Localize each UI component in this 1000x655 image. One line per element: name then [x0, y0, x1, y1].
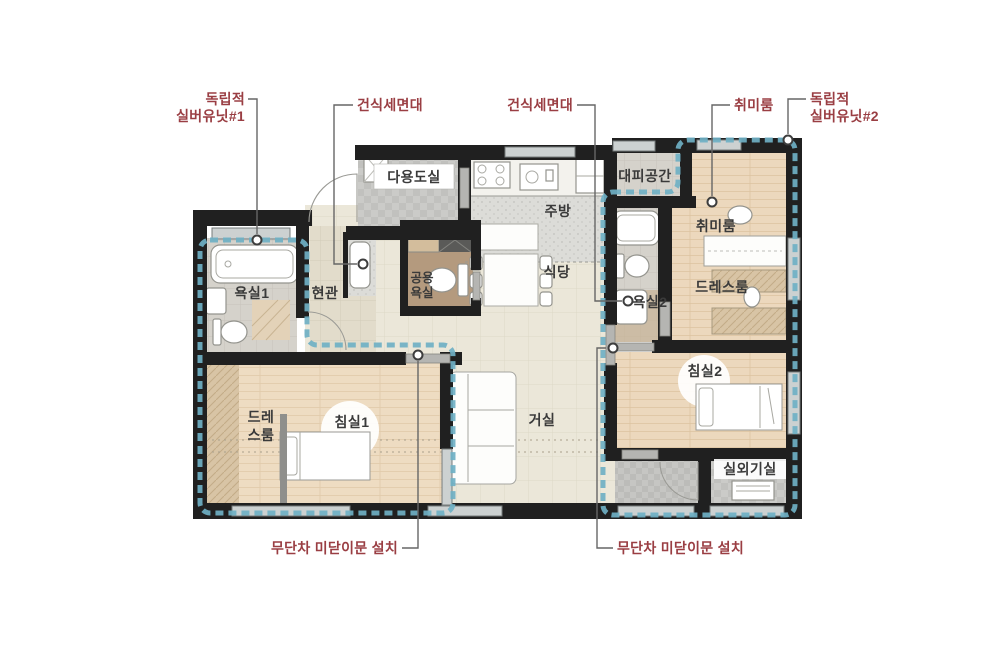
balcony-floor [615, 458, 700, 504]
door-bedroom2-balcony [622, 450, 658, 459]
callout-dry-washstand-left: 건식세면대 [357, 97, 423, 113]
callout-silver-unit1-line1: 독립적 [205, 91, 245, 107]
marker-silver-unit1 [253, 236, 262, 245]
marker-silver-unit2 [784, 136, 793, 145]
bed1-icon [280, 432, 370, 480]
sofa-icon [450, 372, 516, 484]
shared-bath-label-2: 욕실 [410, 285, 433, 300]
callout-sliding-door-left: 무단차 미닫이문 설치 [271, 540, 398, 556]
dress2-label: 드레스룸 [695, 279, 749, 295]
dining-label: 식당 [544, 264, 571, 280]
toilet-icon [221, 321, 247, 343]
bath2-label: 욕실2 [632, 294, 667, 310]
callout-silver-unit2-line2: 실버유닛#2 [810, 108, 879, 124]
window-refuge [613, 141, 655, 151]
bathtub-icon [211, 245, 298, 283]
callout-sliding-door-right: 무단차 미닫이문 설치 [617, 540, 744, 556]
marker-hobby-room [708, 198, 717, 207]
shared-bath-label-1: 공용 [410, 270, 434, 285]
bedroom2-label: 침실2 [687, 363, 722, 379]
leader-silver-unit2 [788, 99, 806, 134]
door-shared-bath [473, 272, 480, 300]
living-label: 거실 [529, 412, 556, 428]
faucet-icon [546, 170, 553, 181]
toilet2-icon [625, 255, 649, 277]
bed2-icon [696, 384, 782, 430]
dress1-label-1: 드레 [248, 409, 275, 425]
marker-dry-washstand-left [359, 260, 368, 269]
window-bedroom1 [232, 506, 350, 516]
dress1-label-2: 스룸 [248, 427, 275, 443]
shared-toilet-tank [458, 264, 468, 296]
wardrobe-bottom-icon [712, 308, 786, 334]
sliding-door-bedroom2 [615, 343, 654, 351]
dining-table [484, 254, 538, 306]
sink-icon [206, 288, 226, 314]
callout-hobby-room: 취미룸 [734, 97, 774, 113]
island-counter [480, 224, 538, 250]
bath1-label: 욕실1 [234, 285, 269, 301]
callout-silver-unit2-line1: 독립적 [810, 91, 850, 107]
toilet-tank [213, 319, 221, 345]
marker-sliding-door-left [414, 351, 423, 360]
utility-label: 다용도실 [387, 169, 441, 185]
dressroom1-partition [280, 414, 287, 504]
toilet2-tank [616, 254, 624, 278]
callout-dry-washstand-right: 건식세면대 [507, 97, 573, 113]
refuge-label: 대피공간 [618, 168, 672, 184]
marker-sliding-door-right [609, 344, 618, 353]
hobby-label: 취미룸 [696, 218, 736, 234]
outdoor-unit-label: 실외기실 [723, 461, 777, 477]
window-kitchen [505, 147, 575, 157]
floor-plan: 다용도실 주방 대피공간 취미룸 현관 욕실1 공용 욕실 식당 욕실2 드레스… [0, 0, 1000, 655]
entrance-label: 현관 [312, 285, 339, 301]
bedroom1-label: 침실1 [334, 414, 369, 430]
floor-plan-page: 다용도실 주방 대피공간 취미룸 현관 욕실1 공용 욕실 식당 욕실2 드레스… [0, 0, 1000, 655]
door-utility [460, 168, 469, 208]
marker-dry-washstand-right [624, 297, 633, 306]
window-bath1 [212, 228, 290, 239]
callout-silver-unit1-line2: 실버유닛#1 [176, 108, 245, 124]
dressroom1-wardrobe [205, 363, 239, 505]
kitchen-label: 주방 [545, 203, 572, 219]
